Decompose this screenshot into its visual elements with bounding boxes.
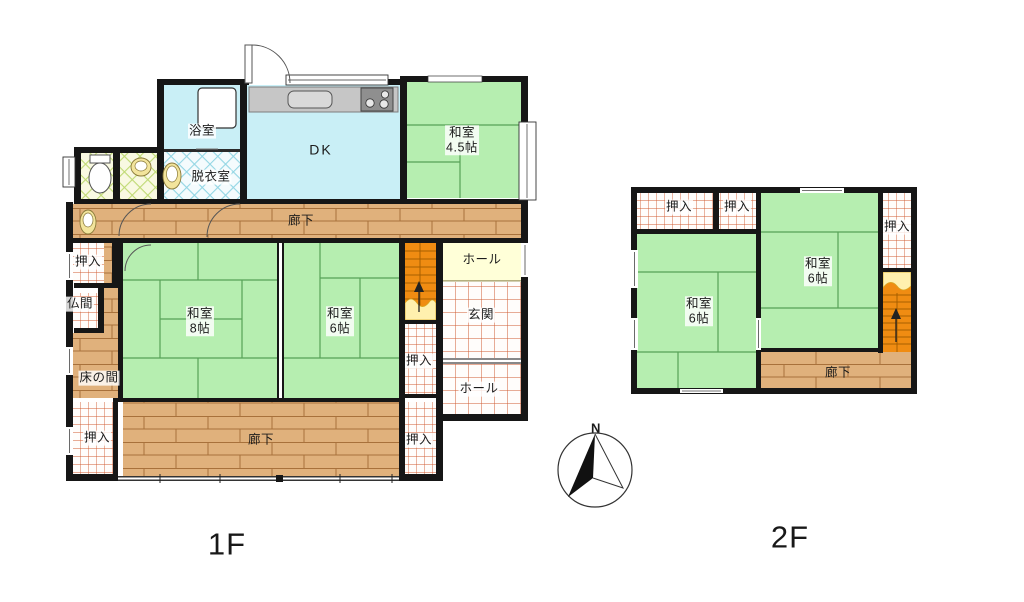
label-genkan: 玄関 xyxy=(467,308,495,323)
floor1-label: 1F xyxy=(207,527,247,564)
label-corridor-top: 廊下 xyxy=(287,214,315,229)
label-washitsu8: 和室8帖 xyxy=(186,306,214,336)
label-closet-top-left: 押入 xyxy=(74,255,102,270)
label-butsuma: 仏間 xyxy=(66,297,94,312)
label-tokonoma: 床の間 xyxy=(78,371,119,386)
label-hall-upper: ホール xyxy=(461,253,502,268)
label-washitsu45: 和室4.5帖 xyxy=(445,125,479,155)
floorplan-2f xyxy=(631,187,917,394)
label-closet-2f-center: 押入 xyxy=(723,200,751,215)
hall-boundary-line xyxy=(443,280,521,282)
north-label: N xyxy=(590,420,602,435)
label-corridor-bottom: 廊下 xyxy=(247,433,275,448)
label-closet-2f-left: 押入 xyxy=(665,200,693,215)
toilet-bowl-icon xyxy=(89,163,111,193)
bathtub-icon xyxy=(198,88,236,128)
floorplan-page: 浴室 脱衣室 DK 和室4.5帖 廊下 押入 仏間 床の間 和室8帖 和室6帖 … xyxy=(0,0,1024,602)
label-washitsu6-2f-right: 和室6帖 xyxy=(804,256,832,286)
compass-icon xyxy=(558,433,632,507)
door-arc xyxy=(252,45,290,83)
label-closet-mid-right: 押入 xyxy=(405,354,433,369)
label-washitsu6-2f-left: 和室6帖 xyxy=(685,296,713,326)
genkan-step-line xyxy=(443,362,521,364)
label-closet-bottom-left: 押入 xyxy=(83,431,111,446)
label-dk: DK xyxy=(308,142,333,159)
room-tokonoma xyxy=(73,333,118,398)
floor2-label: 2F xyxy=(770,520,810,557)
toilet-icon xyxy=(90,155,110,163)
genkan-step-line xyxy=(443,358,521,360)
label-closet-2f-right: 押入 xyxy=(883,220,911,235)
stove-icon xyxy=(361,88,393,111)
entry-door-leaf xyxy=(245,45,252,83)
label-hall-lower: ホール xyxy=(458,382,499,397)
floorplan-drawing xyxy=(0,0,1024,602)
label-dressing: 脱衣室 xyxy=(190,170,231,185)
label-bath: 浴室 xyxy=(188,124,216,139)
label-washitsu6: 和室6帖 xyxy=(326,306,354,336)
label-closet-bottom-right: 押入 xyxy=(405,433,433,448)
label-corridor-2f: 廊下 xyxy=(824,366,852,381)
sink-icon xyxy=(288,91,332,108)
